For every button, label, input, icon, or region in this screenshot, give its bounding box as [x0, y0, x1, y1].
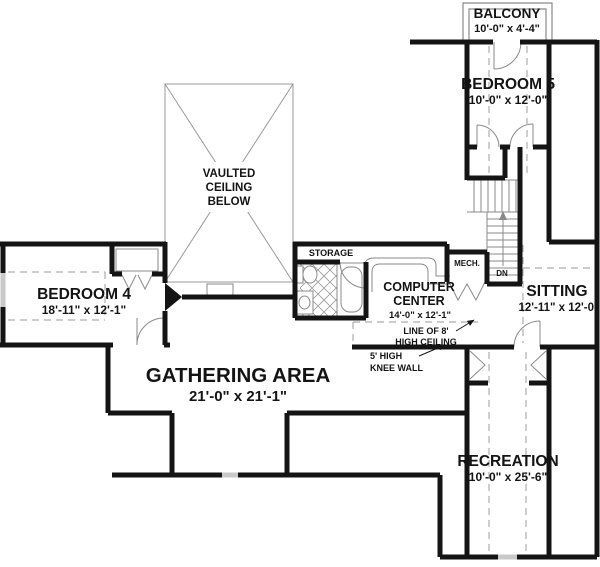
room-label-bedroom4: BEDROOM 4	[37, 286, 131, 303]
vaulted-label-line2: CEILING	[206, 182, 253, 194]
room-label-computer-1: COMPUTER	[383, 280, 455, 294]
room-label-sitting: SITTING	[526, 283, 587, 300]
cased-opening-marker	[165, 283, 182, 311]
room-label-computer-2: CENTER	[393, 294, 444, 308]
vaulted-label-line3: BELOW	[208, 196, 251, 208]
room-label-storage: STORAGE	[309, 248, 353, 258]
vaulted-label-line1: VAULTED	[203, 168, 256, 180]
floor-plan-page: BALCONY 10'-0" x 4'-4" BEDROOM 5 10'-0" …	[0, 0, 600, 567]
knee-wall-note-line1: 5' HIGH	[370, 351, 402, 361]
room-dims-gathering: 21'-0" x 21'-1"	[189, 388, 287, 405]
room-dims-bedroom5: 10'-0" x 12'-0"	[469, 93, 547, 107]
room-label-recreation: RECREATION	[457, 453, 558, 470]
floor-plan-drawing: BALCONY 10'-0" x 4'-4" BEDROOM 5 10'-0" …	[0, 0, 600, 567]
room-dims-sitting: 12'-11" x 12'-0"	[519, 302, 600, 314]
room-label-bedroom5: BEDROOM 5	[461, 76, 555, 93]
knee-wall-note-line2: KNEE WALL	[370, 363, 424, 373]
ceiling-note-line1: LINE OF 8'	[403, 326, 448, 336]
room-dims-bedroom4: 18'-11" x 12'-1"	[42, 303, 126, 317]
room-label-balcony: BALCONY	[474, 6, 541, 21]
room-label-gathering: GATHERING AREA	[146, 364, 331, 387]
room-dims-recreation: 10'-0" x 25'-6"	[469, 470, 547, 484]
stairs-dn-label: DN	[496, 269, 508, 278]
ceiling-note-line2: HIGH CEILING	[395, 337, 457, 347]
room-dims-balcony: 10'-0" x 4'-4"	[474, 23, 540, 35]
room-label-mech: MECH.	[454, 259, 480, 268]
room-dims-computer: 14'-0" x 12'-1"	[389, 310, 451, 321]
